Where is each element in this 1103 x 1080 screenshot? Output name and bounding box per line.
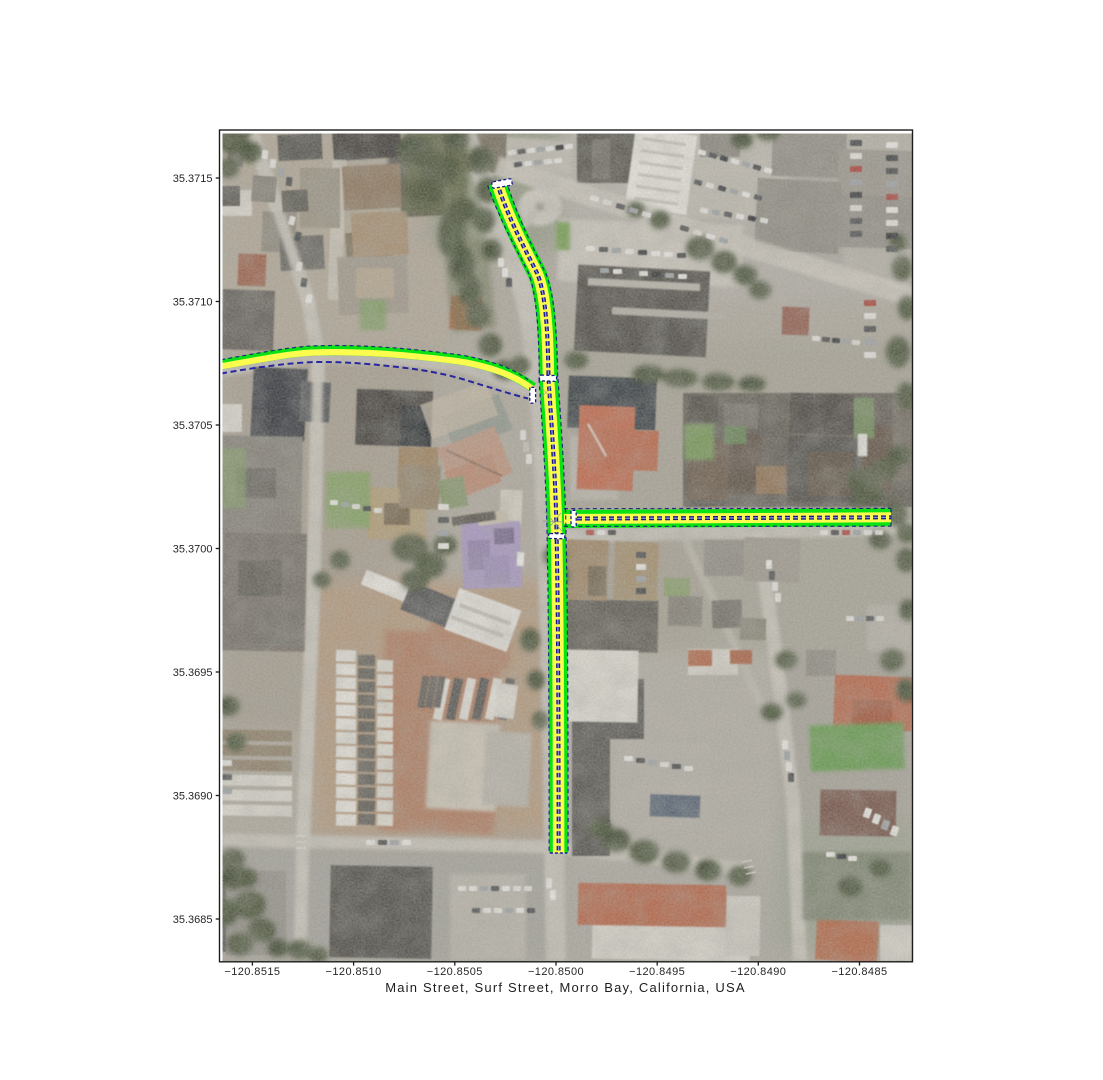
svg-text:−120.8490: −120.8490 — [730, 966, 786, 978]
svg-text:35.3715: 35.3715 — [173, 173, 213, 185]
svg-text:−120.8495: −120.8495 — [629, 966, 685, 978]
svg-text:35.3690: 35.3690 — [173, 790, 213, 802]
svg-text:−120.8500: −120.8500 — [528, 966, 584, 978]
svg-text:−120.8485: −120.8485 — [831, 966, 887, 978]
svg-text:−120.8505: −120.8505 — [427, 966, 483, 978]
svg-text:35.3700: 35.3700 — [173, 543, 213, 555]
svg-text:−120.8515: −120.8515 — [224, 966, 280, 978]
svg-text:35.3695: 35.3695 — [173, 667, 213, 679]
svg-text:35.3710: 35.3710 — [173, 296, 213, 308]
svg-text:35.3685: 35.3685 — [173, 914, 213, 926]
svg-text:35.3705: 35.3705 — [173, 420, 213, 432]
svg-text:−120.8510: −120.8510 — [326, 966, 382, 978]
svg-text:Main Street, Surf Street, Morr: Main Street, Surf Street, Morro Bay, Cal… — [385, 980, 746, 995]
